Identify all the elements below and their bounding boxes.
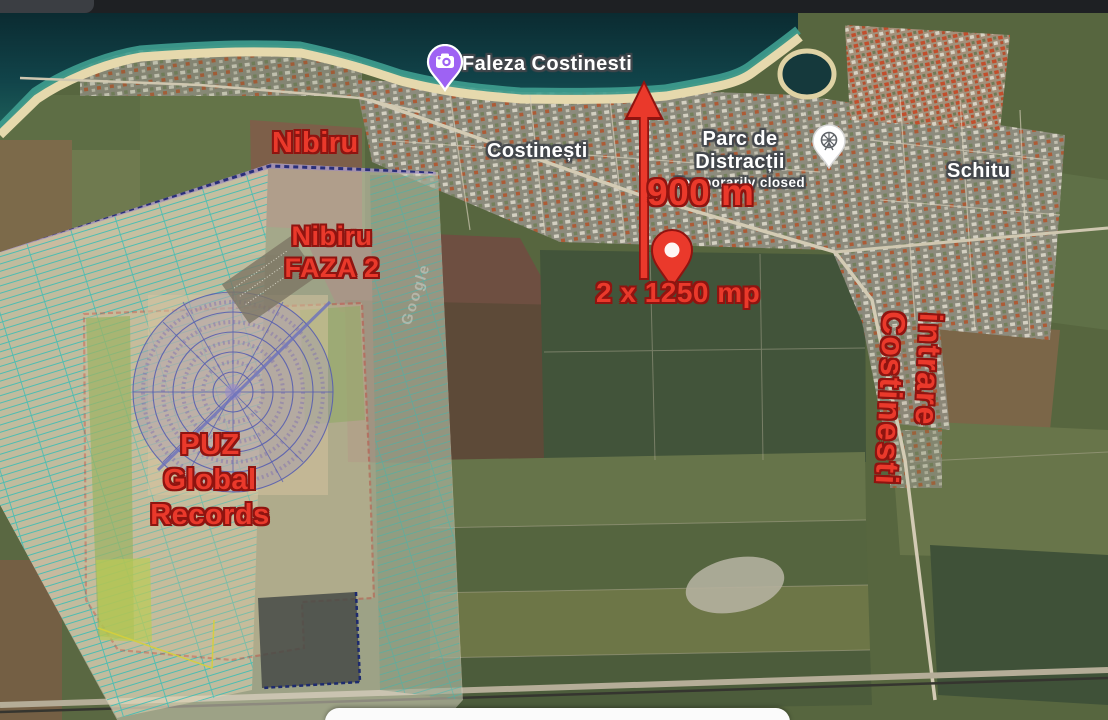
annotation-puz-line1: PUZ bbox=[146, 428, 274, 463]
faleza-place-pin[interactable] bbox=[425, 44, 465, 97]
annotation-intrare-costinesti: intrare Costinesti bbox=[863, 311, 950, 604]
label-costinesti: Costinești bbox=[487, 140, 588, 163]
annotation-puz-line2: Global bbox=[146, 463, 274, 498]
annotation-faza2-line1: Nibiru bbox=[272, 220, 392, 252]
label-faleza-costinesti[interactable]: Faleza Costinesti bbox=[462, 53, 632, 76]
window-top-bar bbox=[0, 0, 1108, 13]
camera-pin-icon bbox=[425, 44, 465, 92]
annotation-nibiru: Nibiru bbox=[272, 127, 359, 160]
label-parc-de-distractii[interactable]: Parc de Distracții bbox=[655, 128, 825, 174]
screenshot-stage: Faleza Costinesti Costinești Parc de Dis… bbox=[0, 0, 1108, 720]
annotation-puz-global-records: PUZ Global Records bbox=[146, 428, 274, 533]
bottom-sheet-handle[interactable] bbox=[325, 708, 790, 720]
annotation-nibiru-faza2: Nibiru FAZA 2 bbox=[272, 220, 392, 284]
annotation-faza2-line2: FAZA 2 bbox=[272, 252, 392, 284]
annotation-distance-900m: 900 m bbox=[647, 172, 754, 214]
annotation-plot-size: 2 x 1250 mp bbox=[596, 277, 760, 309]
parc-place-pin[interactable] bbox=[810, 124, 848, 175]
amusement-park-pin-icon bbox=[810, 124, 848, 170]
browser-tab[interactable] bbox=[0, 0, 94, 13]
pond bbox=[780, 51, 834, 97]
annotation-puz-line3: Records bbox=[146, 498, 274, 533]
label-schitu: Schitu bbox=[947, 160, 1011, 183]
